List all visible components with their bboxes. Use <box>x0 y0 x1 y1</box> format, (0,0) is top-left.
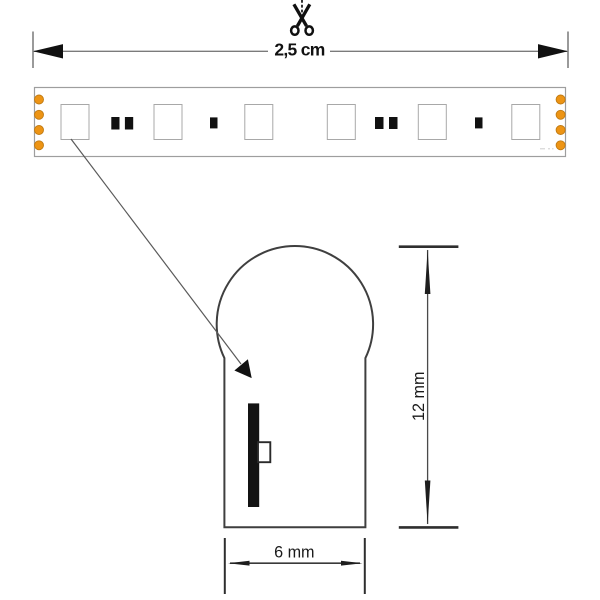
svg-text:2,5 cm: 2,5 cm <box>274 39 324 59</box>
svg-text:12 mm: 12 mm <box>410 372 428 421</box>
svg-text:6 mm: 6 mm <box>274 544 314 562</box>
